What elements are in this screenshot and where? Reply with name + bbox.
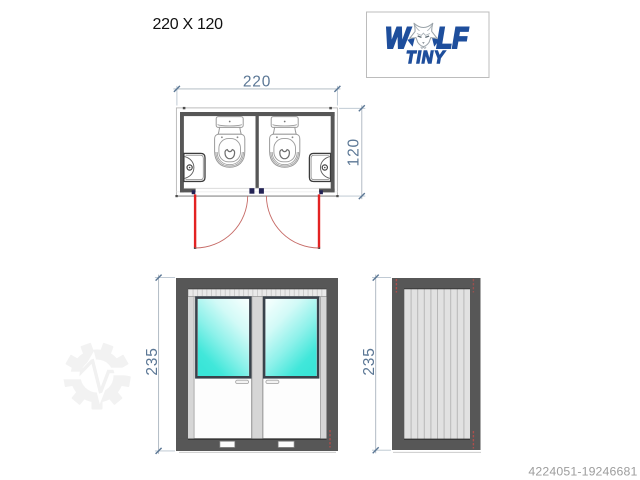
svg-text:235: 235 bbox=[361, 347, 378, 375]
svg-text:235: 235 bbox=[144, 347, 161, 375]
svg-text:220 X 120: 220 X 120 bbox=[153, 16, 224, 33]
svg-text:4224051-19246681: 4224051-19246681 bbox=[528, 464, 637, 478]
svg-text:120: 120 bbox=[345, 138, 362, 166]
svg-text:TINY: TINY bbox=[406, 47, 446, 67]
svg-text:220: 220 bbox=[243, 74, 271, 91]
